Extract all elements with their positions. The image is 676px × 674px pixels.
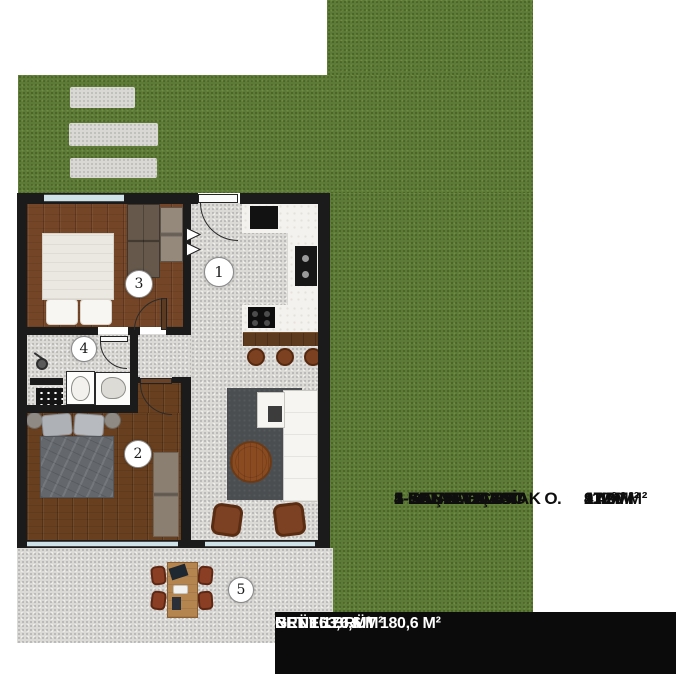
closet-door-symbol bbox=[186, 227, 201, 257]
cooktop-burner bbox=[264, 311, 270, 317]
bar-stool bbox=[276, 348, 294, 366]
wardrobe bbox=[127, 204, 160, 278]
dining-chair bbox=[150, 565, 167, 585]
bed-pillow bbox=[41, 413, 73, 438]
bed-pillow bbox=[80, 299, 112, 325]
wall-interior bbox=[17, 405, 138, 413]
bed-pillow bbox=[73, 413, 104, 437]
armchair bbox=[210, 502, 244, 538]
nightstand bbox=[104, 412, 121, 429]
room-number: 4 bbox=[80, 341, 89, 357]
stepping-stone bbox=[70, 158, 157, 178]
bed-pillow bbox=[46, 299, 78, 325]
stepping-stone bbox=[70, 87, 135, 108]
area-summary-box: NET 163,6 M² BRÜT 170,6 M² GENEL BRÜT 18… bbox=[275, 612, 676, 674]
shower-head-icon bbox=[36, 358, 48, 370]
entry-door-leaf bbox=[198, 194, 238, 203]
coffee-table bbox=[230, 441, 272, 483]
dining-chair bbox=[197, 565, 214, 585]
wall-interior bbox=[181, 377, 191, 548]
toilet-icon bbox=[71, 376, 90, 401]
hallway-floor bbox=[133, 334, 191, 383]
room-number: 3 bbox=[135, 276, 144, 292]
room-number: 1 bbox=[214, 263, 224, 281]
armchair bbox=[272, 501, 307, 538]
room-label-master-bedroom: 2 bbox=[124, 440, 152, 468]
towel-rail bbox=[30, 378, 63, 385]
wall-interior bbox=[183, 193, 191, 334]
stepping-stone bbox=[69, 123, 158, 146]
cooktop-burner bbox=[252, 311, 258, 317]
cooktop-burner bbox=[252, 320, 258, 326]
sofa-tray bbox=[268, 406, 282, 422]
bed-duvet bbox=[42, 233, 114, 300]
wall-interior bbox=[130, 327, 138, 413]
grass-area-right bbox=[330, 193, 533, 612]
room-number: 5 bbox=[237, 582, 246, 598]
wall-interior bbox=[17, 327, 98, 335]
bar-stool bbox=[247, 348, 265, 366]
room-label-bathroom: 4 bbox=[71, 336, 97, 362]
bar-counter bbox=[243, 332, 318, 346]
window bbox=[44, 194, 124, 202]
papers-icon bbox=[173, 585, 188, 594]
oven-knob bbox=[302, 255, 309, 262]
room-label-terrace: 5 bbox=[228, 577, 254, 603]
cooktop-burner bbox=[264, 320, 270, 326]
legend-room-area: 112 M² bbox=[584, 488, 634, 510]
dining-chair bbox=[150, 590, 167, 611]
nightstand bbox=[26, 412, 43, 429]
phone-icon bbox=[172, 597, 181, 610]
wall-top bbox=[240, 193, 330, 204]
fridge-icon bbox=[250, 206, 278, 229]
grass-area-top bbox=[327, 0, 533, 76]
oven-unit-icon bbox=[295, 246, 317, 286]
wall-interior bbox=[130, 377, 140, 383]
bed-blanket bbox=[40, 436, 114, 498]
sofa bbox=[283, 390, 318, 502]
room-label-bedroom: 3 bbox=[125, 270, 153, 298]
legend-room-name: 5-KAT BAHÇESİ bbox=[394, 488, 516, 510]
room-number: 2 bbox=[134, 446, 143, 462]
room-label-living: 1 bbox=[204, 257, 234, 287]
floor-plan-canvas: 1 2 3 4 5 1- YAŞAM ALANI 27 M² 2-EBEVEYN… bbox=[0, 0, 676, 674]
cabinet bbox=[160, 207, 183, 262]
window bbox=[27, 541, 178, 547]
oven-knob bbox=[302, 271, 309, 278]
dining-chair bbox=[197, 590, 213, 610]
window bbox=[205, 541, 315, 547]
summary-genel-brut: GENEL BRÜT 180,6 M² bbox=[275, 614, 441, 635]
wall-right bbox=[318, 193, 330, 548]
closet bbox=[153, 452, 179, 537]
wall-left bbox=[17, 193, 27, 548]
sink-icon bbox=[101, 377, 126, 399]
